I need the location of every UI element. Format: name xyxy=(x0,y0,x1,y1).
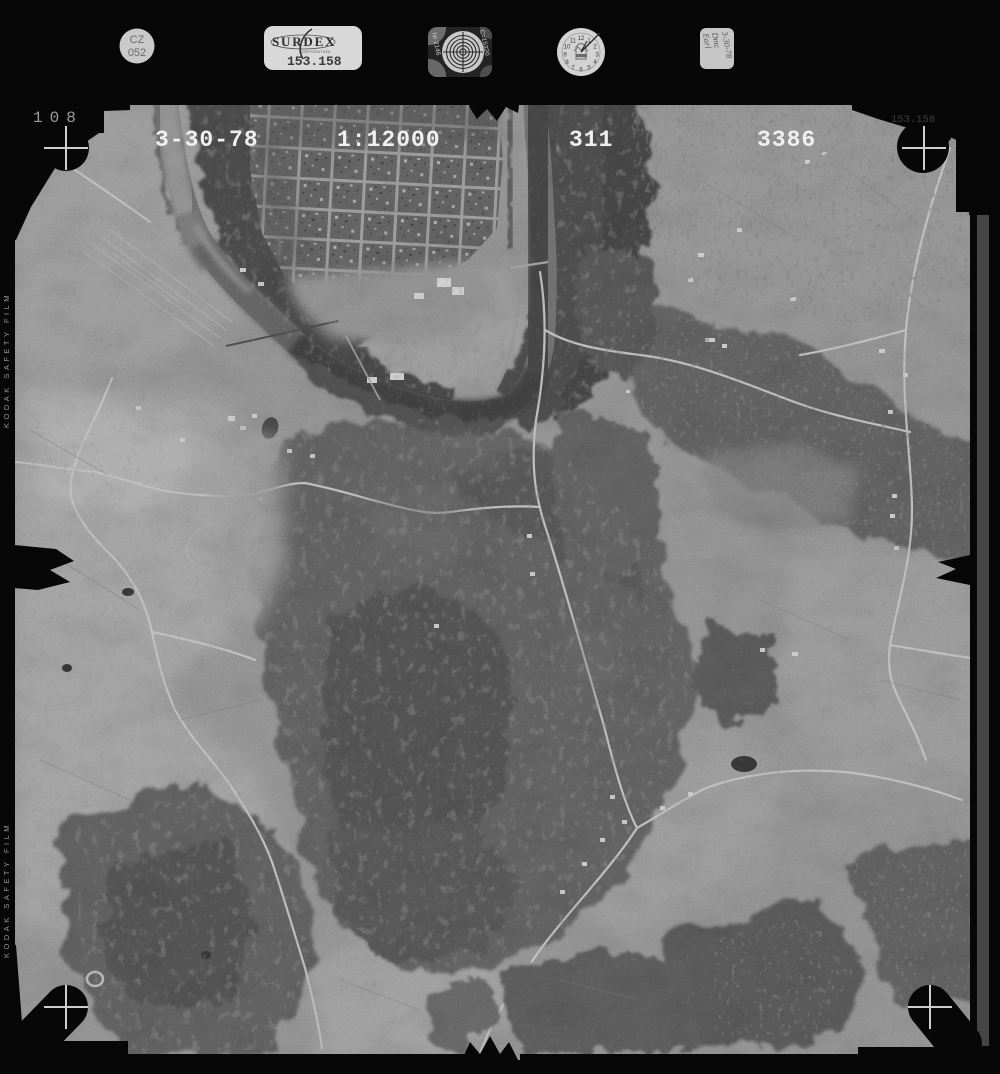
svg-text:KODAK SAFETY FILM: KODAK SAFETY FILM xyxy=(2,292,11,428)
svg-text:CZ: CZ xyxy=(130,34,145,46)
svg-text:153.158: 153.158 xyxy=(891,114,935,126)
svg-text:1:12000: 1:12000 xyxy=(337,127,441,153)
svg-text:11: 11 xyxy=(570,39,577,45)
svg-text:3-30-78: 3-30-78 xyxy=(155,127,259,153)
svg-text:KODAK SAFETY FILM: KODAK SAFETY FILM xyxy=(2,822,11,958)
svg-text:12: 12 xyxy=(578,36,585,42)
svg-text:3386: 3386 xyxy=(757,127,816,153)
svg-text:153.158: 153.158 xyxy=(287,54,342,69)
svg-text:108: 108 xyxy=(33,109,83,127)
svg-text:052: 052 xyxy=(128,47,146,59)
svg-text:311: 311 xyxy=(569,127,613,153)
svg-text:10: 10 xyxy=(564,45,571,51)
